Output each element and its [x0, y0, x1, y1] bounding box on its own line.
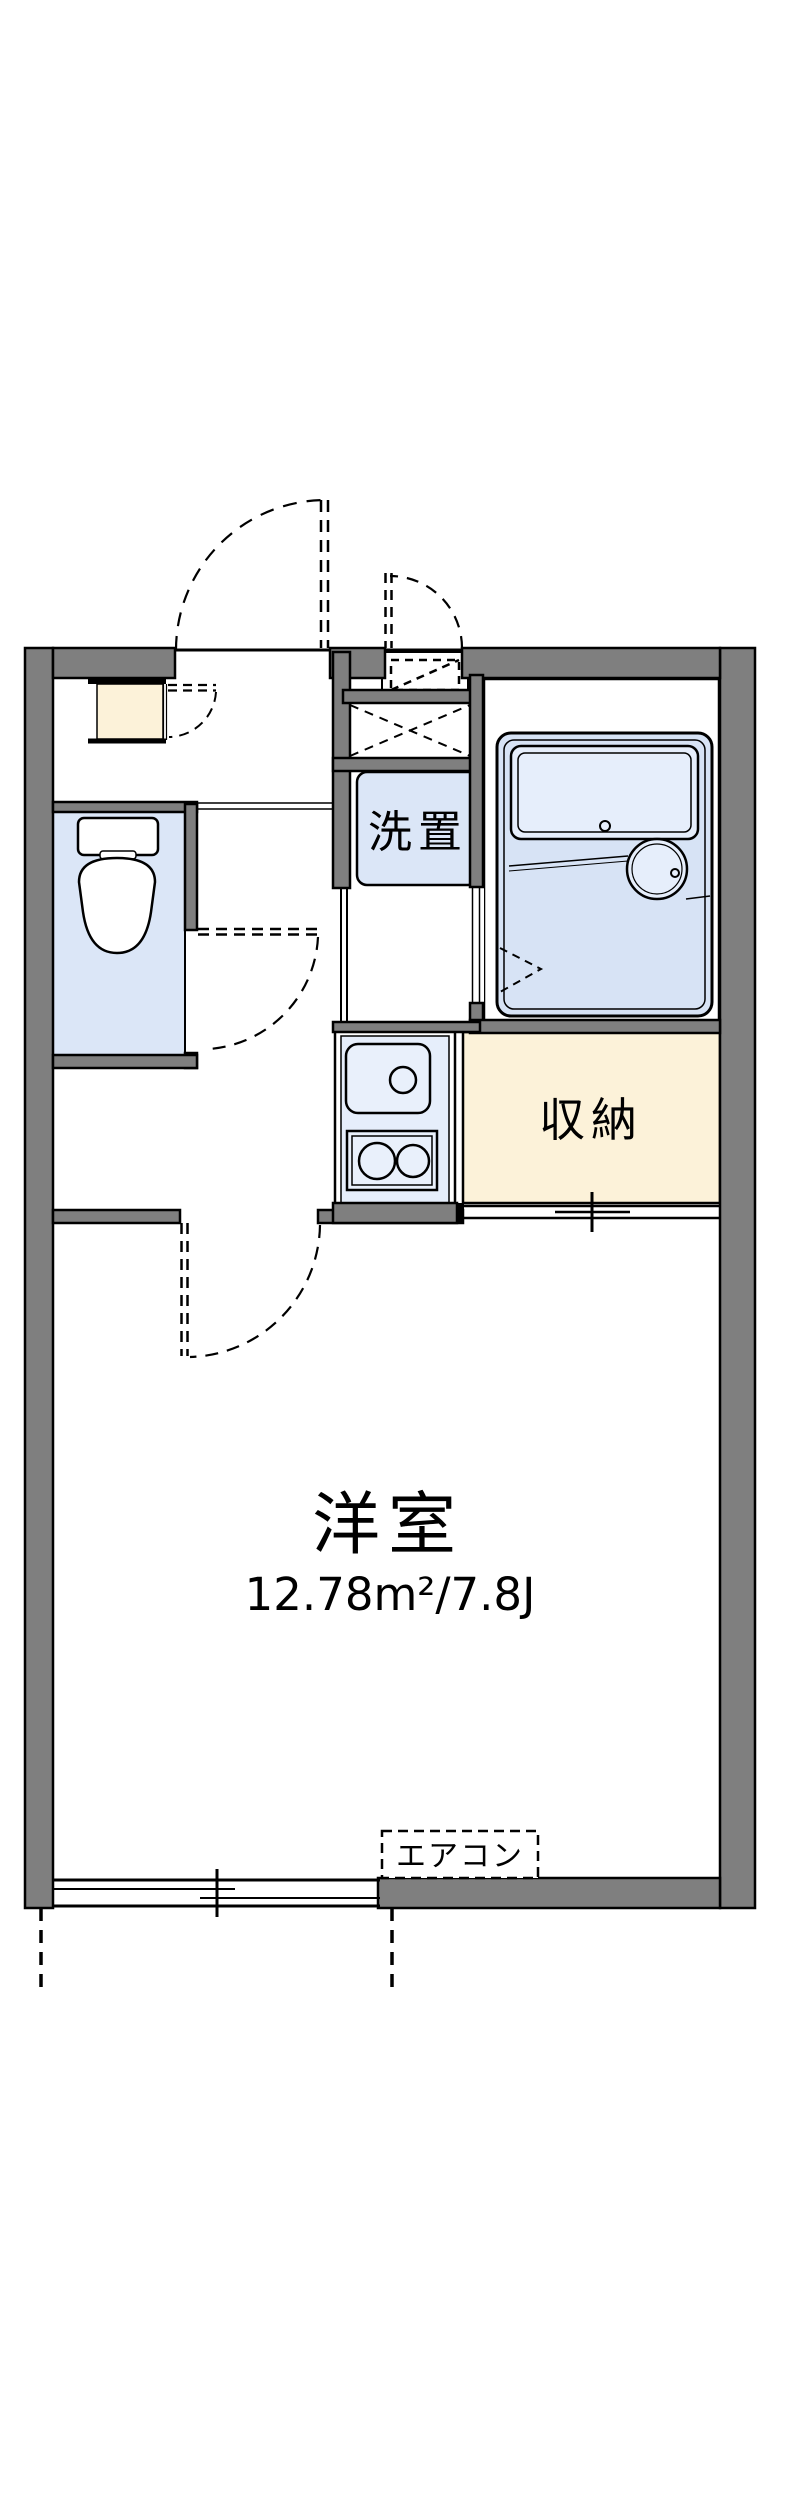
mainroom-door-swing-arc [190, 1225, 320, 1357]
wall-washer-top [333, 758, 480, 771]
entrance-door-swing-arc [176, 500, 326, 650]
wall-under-meter-box [343, 690, 482, 703]
main-room-label: 洋室 [312, 1486, 464, 1565]
wall-bottom [378, 1878, 720, 1908]
doors [168, 500, 462, 1357]
aircon-label: エアコン [396, 1839, 524, 1874]
wall-toilet-right [185, 804, 197, 930]
shoe-cabinet-door-arc [169, 692, 216, 737]
boundary-stubs [41, 1908, 392, 1992]
bathtub [511, 746, 698, 839]
kitchen [335, 1030, 455, 1213]
stove [347, 1131, 437, 1190]
wall-bath-bottom [470, 1020, 720, 1033]
floor-plan-page: 洗置 [0, 0, 785, 2494]
toilet-tank [78, 818, 158, 855]
wall-left [25, 648, 53, 1908]
wall-hall-mainroom [53, 1210, 180, 1223]
floor-plan-canvas: 洗置 [0, 0, 785, 2494]
wall-toilet-bottom [53, 1055, 197, 1068]
wall-top-right [462, 648, 720, 678]
meter-door-swing-arc [390, 576, 462, 648]
overhead-cabinet [348, 703, 472, 758]
sill-end-post [457, 1203, 464, 1223]
toilet-room [78, 818, 158, 953]
bathroom-door-opening [469, 887, 484, 1003]
storage-label: 収納 [539, 1093, 643, 1147]
kitchen-sink [346, 1044, 430, 1113]
washer-space: 洗置 [357, 772, 478, 885]
wall-bath-left-upper [470, 675, 483, 887]
wall-toilet-top [53, 802, 197, 812]
main-window [53, 1869, 380, 1917]
toilet-bowl [79, 858, 155, 953]
toilet-door-swing-arc [209, 937, 318, 1049]
shoe-cabinet [97, 684, 163, 739]
wall-right [720, 648, 755, 1908]
wall-top-left [53, 648, 175, 678]
aircon: エアコン [382, 1831, 538, 1878]
entry-hall [88, 682, 335, 810]
washer-label: 洗置 [368, 807, 468, 858]
wall-kitchen-top [333, 1022, 480, 1032]
wall-kitchen-bottom [333, 1203, 457, 1223]
main-room-area-label: 12.78m²/7.8J [245, 1568, 536, 1621]
bathroom [469, 733, 712, 1016]
